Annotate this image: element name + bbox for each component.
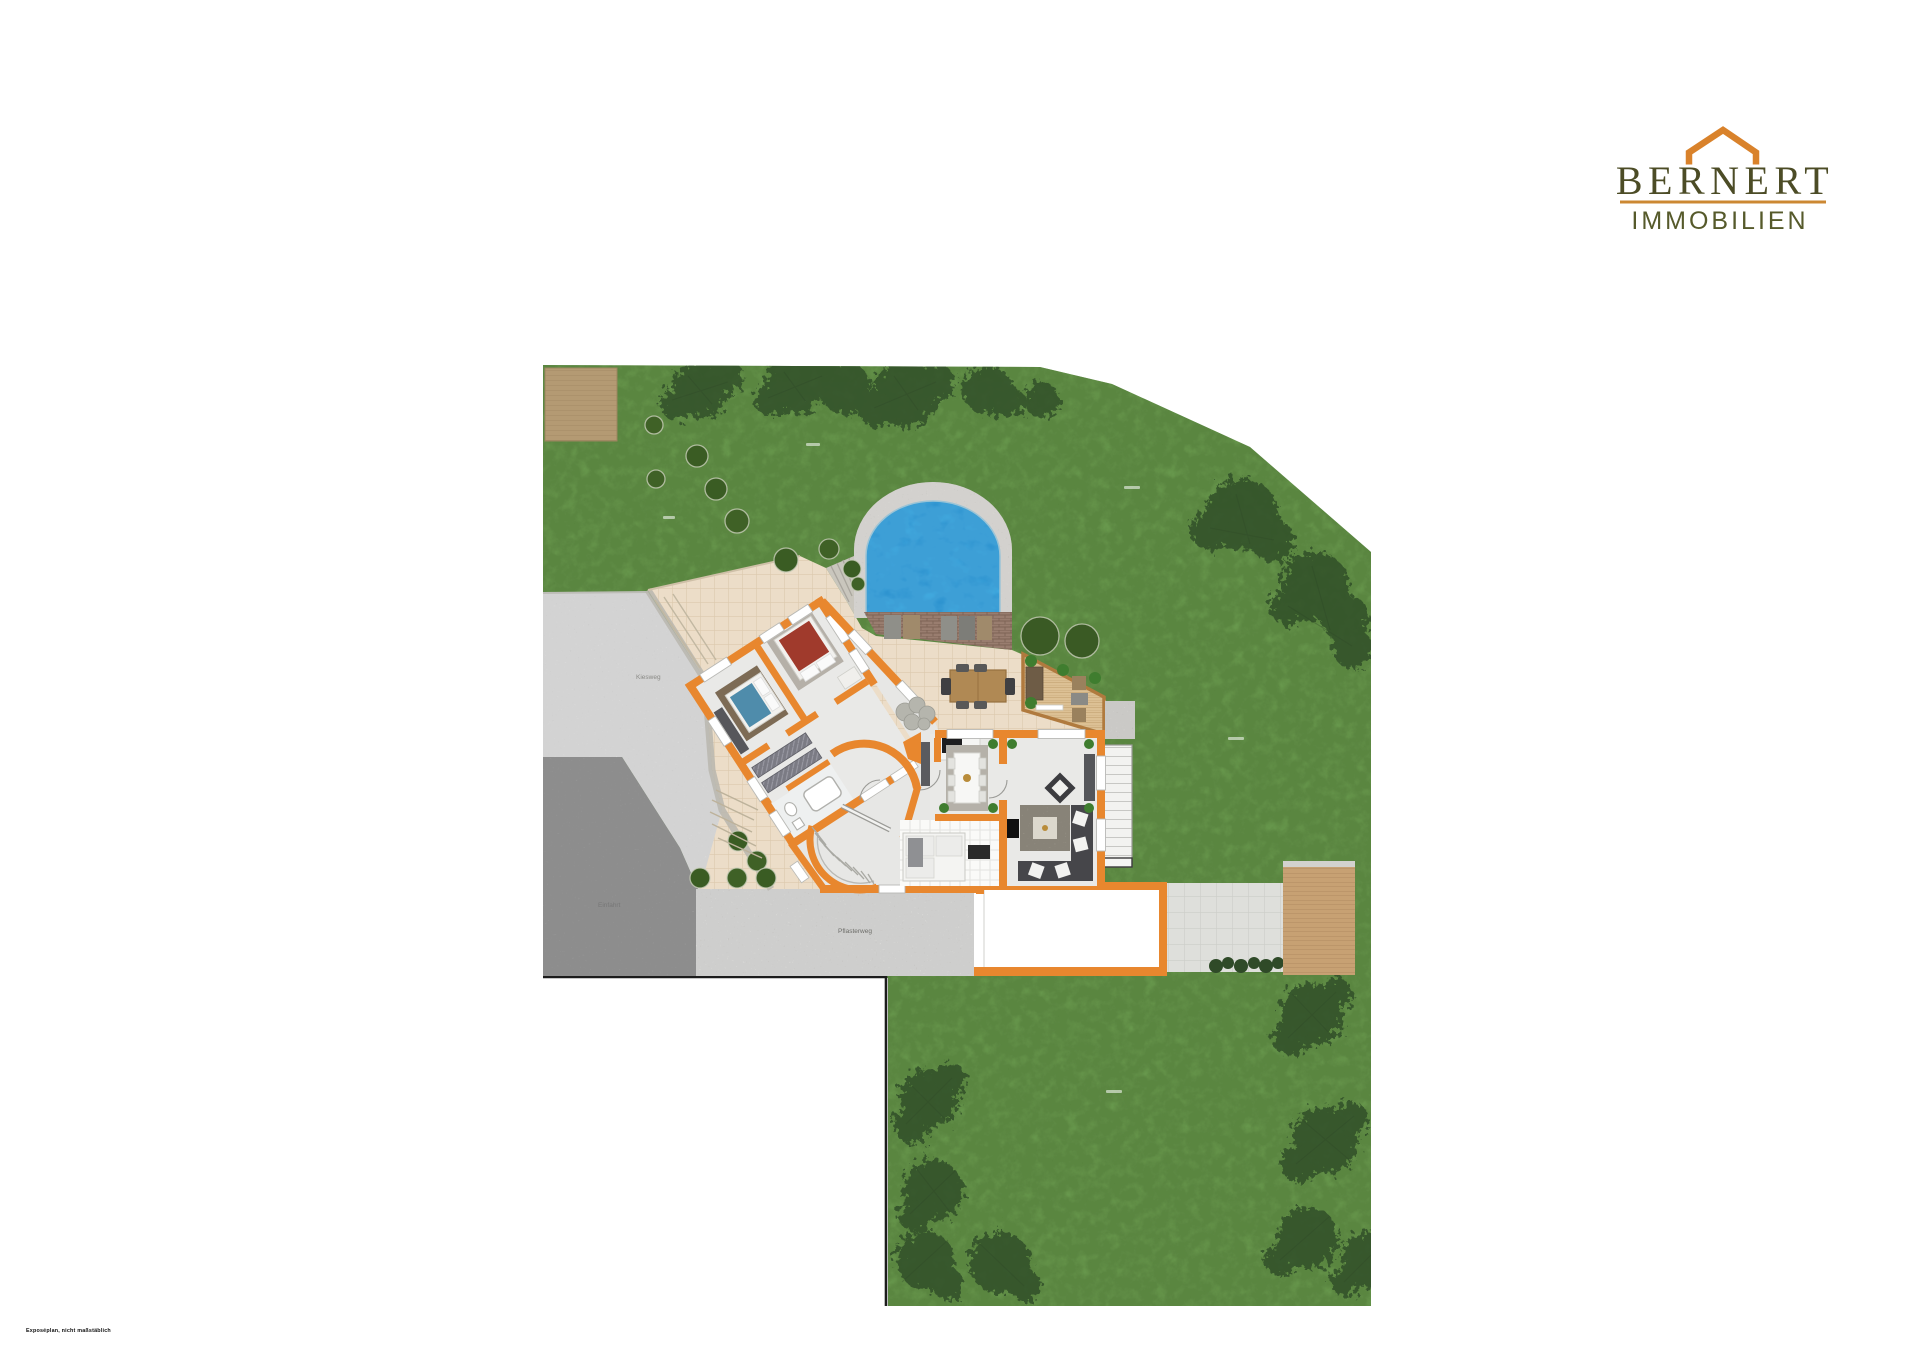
svg-text:Pflasterweg: Pflasterweg bbox=[838, 928, 872, 935]
svg-text:IMMOBILIEN: IMMOBILIEN bbox=[1631, 207, 1808, 235]
svg-text:BERNERT: BERNERT bbox=[1616, 158, 1834, 203]
svg-text:Einfahrt: Einfahrt bbox=[598, 902, 621, 909]
svg-text:Exposéplan, nicht maßstäblich: Exposéplan, nicht maßstäblich bbox=[26, 1328, 111, 1334]
svg-text:Kiesweg: Kiesweg bbox=[636, 674, 661, 681]
